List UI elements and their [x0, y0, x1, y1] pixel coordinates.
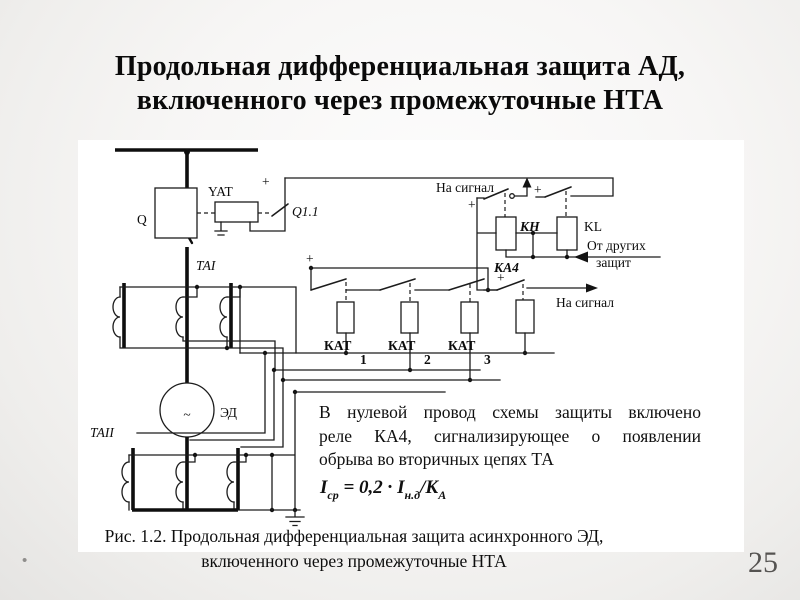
- ct-group-ta1: [113, 283, 296, 380]
- from-other-protections-arrow: [574, 252, 588, 263]
- formula-eq: = 0,2 ·: [339, 477, 397, 498]
- formula-sub3: А: [438, 488, 446, 502]
- kat3-coil: [461, 302, 478, 333]
- title-line2: включенного через промежуточные НТА: [137, 85, 663, 116]
- note-line3: обрыва во вторичных цепях ТА: [319, 448, 701, 472]
- plus-sign: +: [262, 174, 270, 189]
- formula-sub2: н.д: [404, 488, 420, 502]
- label-kat3: КАТ: [448, 338, 475, 353]
- kh-coil: [496, 217, 516, 250]
- figure-caption: Рис. 1.2. Продольная дифференциальная за…: [40, 524, 668, 574]
- note-text: В нулевой провод схемы защиты включено р…: [319, 401, 701, 472]
- label-na-signal-bottom: На сигнал: [556, 295, 614, 310]
- label-kat2-sub: 2: [424, 352, 431, 367]
- motor-wave-symbol: ~: [183, 407, 190, 422]
- label-ta2: ТАII: [90, 425, 115, 440]
- label-yat: YAT: [208, 184, 234, 199]
- label-q11: Q1.1: [292, 204, 319, 219]
- title-line1: Продольная дифференциальная защита АД,: [115, 51, 685, 82]
- kat1-coil: [337, 302, 354, 333]
- kat2-coil: [401, 302, 418, 333]
- label-from-other-1: От других: [587, 238, 646, 253]
- caption-line2: включенного через промежуточные НТА: [40, 549, 668, 574]
- ka4-coil: [516, 300, 534, 333]
- label-q: Q: [137, 212, 147, 227]
- yat-coil: [215, 202, 258, 222]
- label-ta1: ТАI: [196, 258, 217, 273]
- label-from-other-2: защит: [596, 255, 631, 270]
- footer-bullet: •: [22, 552, 27, 569]
- plus-sign: +: [534, 182, 542, 197]
- to-signal-arrow: [586, 284, 598, 293]
- label-na-signal-top: На сигнал: [436, 180, 494, 195]
- page-number: 25: [748, 546, 778, 580]
- label-ed: ЭД: [220, 405, 237, 420]
- kl-coil: [557, 217, 577, 250]
- plus-sign: +: [468, 197, 476, 212]
- plus-sign: +: [306, 251, 314, 266]
- label-kat1: КАТ: [324, 338, 351, 353]
- formula: Iср = 0,2 · Iн.д/КА: [320, 477, 446, 499]
- label-kat2: КАТ: [388, 338, 415, 353]
- slide-title: Продольная дифференциальная защита АД, в…: [0, 50, 800, 118]
- label-kh: КН: [519, 219, 540, 234]
- formula-den: /К: [420, 477, 438, 498]
- relay-section: [309, 266, 598, 382]
- plus-sign: +: [497, 270, 505, 285]
- label-kl: KL: [584, 219, 602, 234]
- note-line2: реле КА4, сигнализирующее о появлении: [319, 425, 701, 449]
- label-kat3-sub: 3: [484, 352, 491, 367]
- caption-line1: Рис. 1.2. Продольная дифференциальная за…: [40, 524, 668, 549]
- label-kat1-sub: 1: [360, 352, 367, 367]
- formula-sub1: ср: [327, 488, 338, 502]
- slide: Q YAT + Q1.1 На сигнал + КН + KL От друг…: [0, 0, 800, 600]
- note-line1: В нулевой провод схемы защиты включено: [319, 401, 701, 425]
